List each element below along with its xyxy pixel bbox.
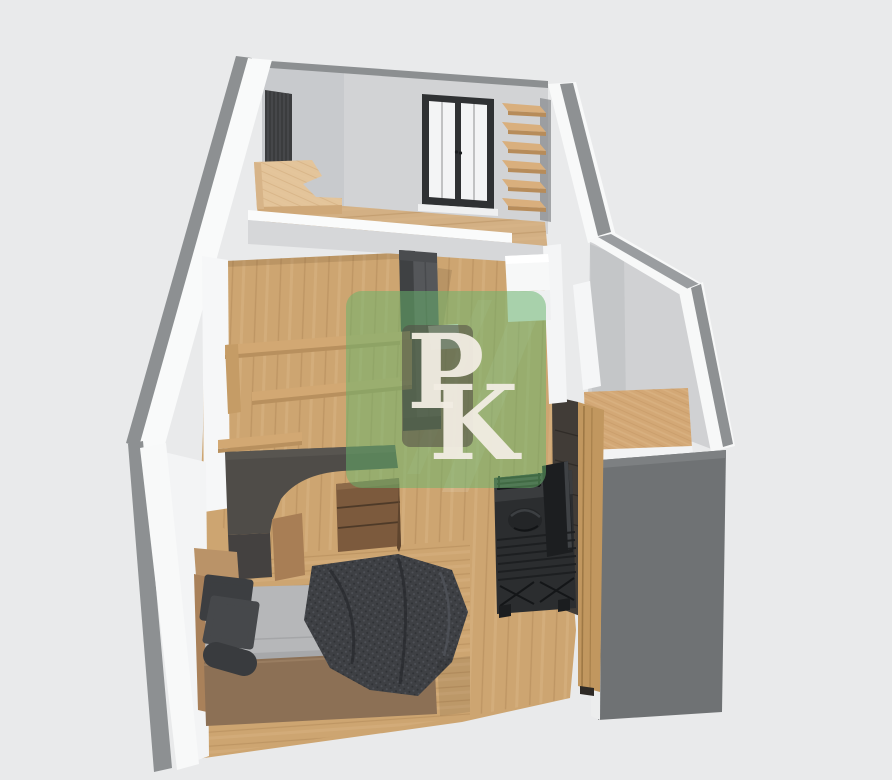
console-leg	[558, 598, 570, 612]
watermark-letter-k: K	[429, 363, 522, 484]
window	[418, 94, 498, 216]
console-leg	[499, 604, 511, 618]
window-handle	[455, 150, 458, 153]
headboard-top	[194, 548, 239, 580]
pillow	[206, 599, 256, 646]
bed	[194, 548, 470, 726]
radiator	[265, 90, 292, 167]
bed-floor-shadow	[437, 656, 470, 716]
gray-side-panel	[591, 450, 726, 720]
bag	[508, 508, 542, 532]
drawer-unit	[336, 478, 401, 552]
window-handle	[459, 151, 462, 154]
apartment-render: P K	[0, 0, 892, 780]
desk-side-panel	[272, 513, 305, 581]
watermark: P K	[346, 291, 546, 488]
floorplan-svg: P K	[0, 0, 892, 780]
bolster-pillow	[216, 655, 244, 663]
